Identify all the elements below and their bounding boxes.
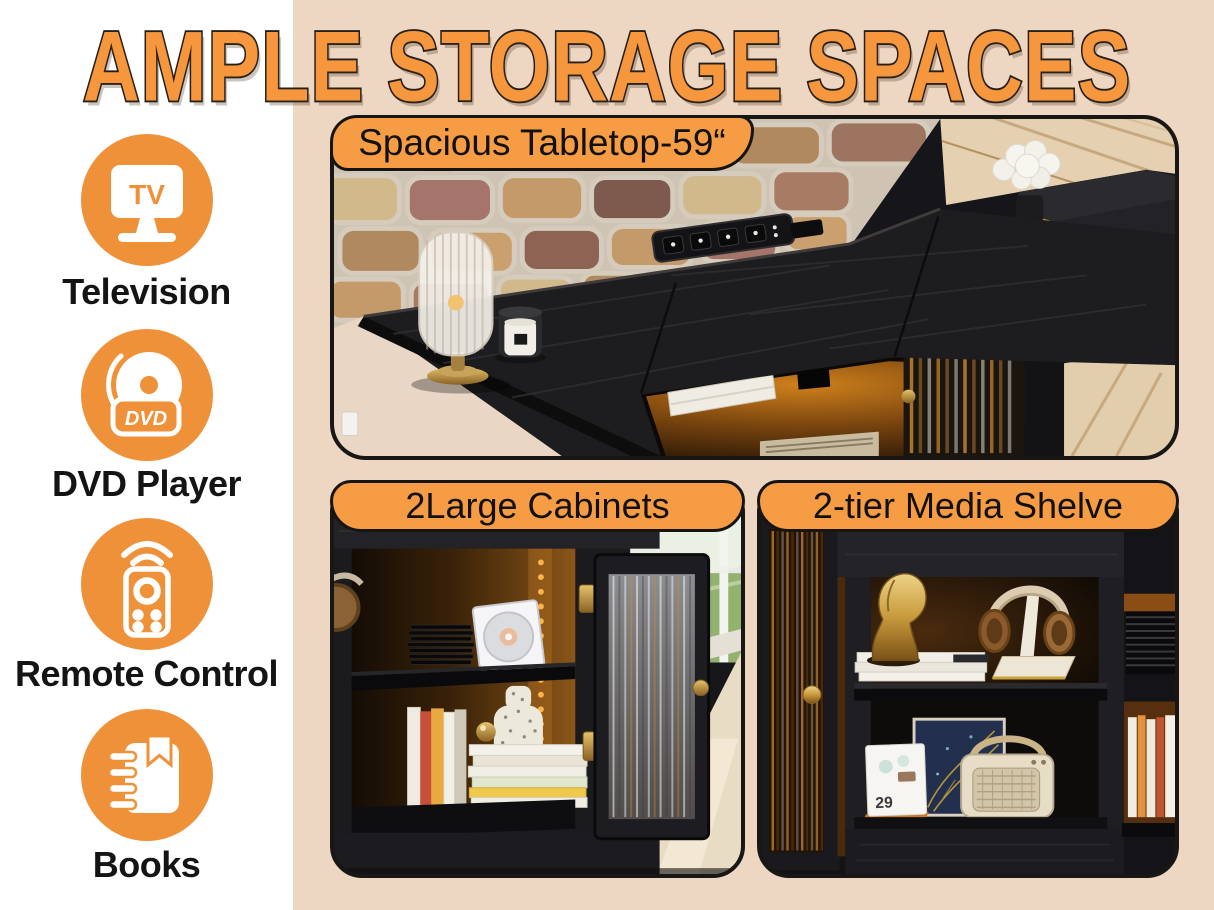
media-shelf-photo: 29 [757,480,1179,878]
dvd-player-icon: DVD [79,327,215,463]
gold-ball [476,722,496,742]
cabinets-badge-label: 2Large Cabinets [405,485,669,527]
media-shelf-badge-label: 2-tier Media Shelve [813,485,1123,527]
book-stack [468,745,587,808]
cd-stack [408,625,475,664]
product-infographic: TV Television DVD DVD Player [0,0,1214,910]
books-icon [79,707,215,843]
svg-text:DVD: DVD [125,408,167,430]
page-title: AMPLE STORAGE SPACES [0,16,1214,116]
remote-control-icon [79,516,215,652]
right-column [1122,484,1175,874]
sidebar-item-remote-control: Remote Control [0,652,293,696]
framed-cd [472,600,544,674]
door-knob [902,390,916,404]
media-shelf-badge: 2-tier Media Shelve [757,480,1179,532]
tabletop-badge-label: Spacious Tabletop-59“ [358,122,726,164]
calendar-day: 29 [875,795,893,813]
desk-calendar: 29 [860,744,929,823]
tabletop-badge: Spacious Tabletop-59“ [330,115,754,171]
media-shelf-photo-illustration: 29 [761,484,1175,874]
wall-outlet [342,412,358,435]
door-knob [693,680,709,696]
svg-text:TV: TV [129,179,165,210]
sidebar-item-books: Books [0,843,293,887]
candle-jar [494,307,546,364]
bottom-rail [845,829,1124,874]
tv-icon: TV [79,132,215,268]
cabinets-badge: 2Large Cabinets [330,480,745,532]
door-knob [803,686,821,704]
fluted-glass-door-left [761,511,845,870]
sidebar-item-television: Television [0,270,293,314]
sidebar: TV Television DVD DVD Player [0,0,293,910]
fluted-glass-door [579,555,708,839]
cabinets-photo-illustration [334,484,741,874]
door-hinge [579,585,595,612]
middle-shelf [854,689,1107,701]
book-row [408,707,467,805]
sidebar-item-dvd-player: DVD Player [0,462,293,506]
cabinets-photo [330,480,745,878]
